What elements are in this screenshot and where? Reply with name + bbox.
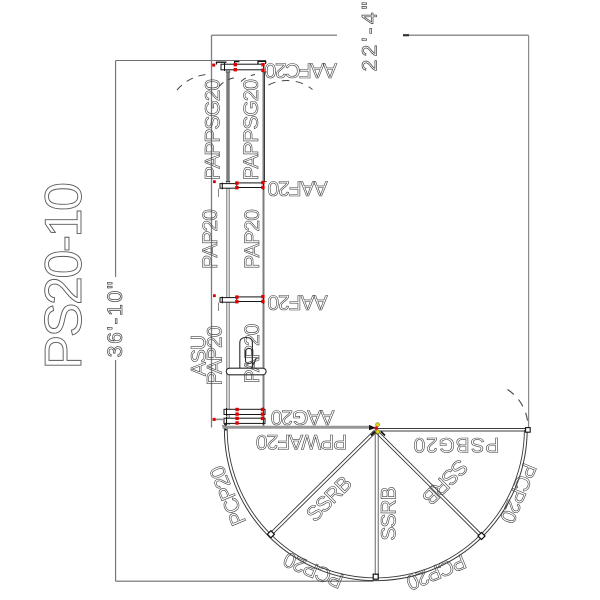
svg-text:PAPPSG20: PAPPSG20 — [202, 80, 225, 180]
svg-text:AAF20: AAF20 — [268, 177, 328, 200]
svg-text:PAP20: PAP20 — [204, 326, 227, 385]
svg-text:22'-4": 22'-4" — [359, 0, 382, 71]
svg-text:36'-10": 36'-10" — [104, 280, 127, 358]
svg-text:AAF20: AAF20 — [268, 291, 328, 314]
svg-text:PPWAF20: PPWAF20 — [257, 430, 348, 453]
svg-text:SSRB: SSRB — [378, 487, 401, 540]
svg-text:PS20-10: PS20-10 — [35, 184, 93, 369]
svg-text:PAP20: PAP20 — [199, 210, 222, 269]
svg-text:PAP20: PAP20 — [241, 210, 264, 269]
svg-text:PAP20: PAP20 — [241, 324, 264, 383]
svg-text:AAFC20: AAFC20 — [265, 59, 337, 82]
svg-text:PSBG20: PSBG20 — [413, 433, 500, 456]
svg-text:PAPPSG20: PAPPSG20 — [240, 80, 263, 180]
svg-text:AAG20: AAG20 — [271, 406, 334, 429]
